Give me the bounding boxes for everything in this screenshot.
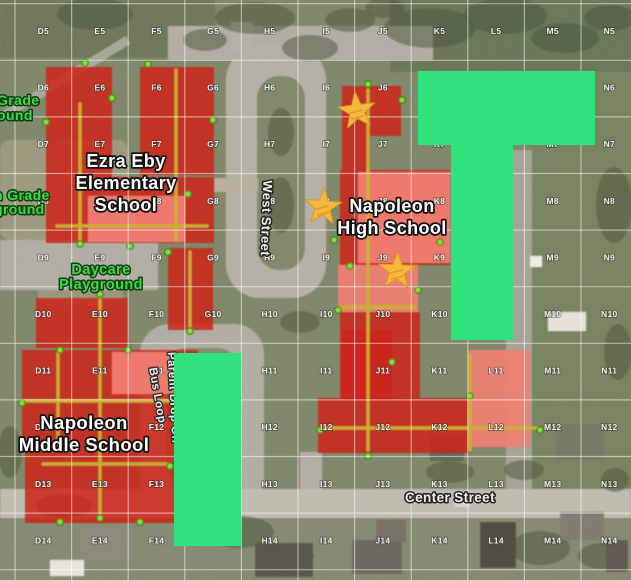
entrance-marker-dot — [365, 81, 371, 87]
grid-cell-label: N7 — [604, 139, 615, 149]
high-school-label: High School — [337, 218, 446, 238]
grid-cell-label: D11 — [35, 366, 51, 376]
grid-cell-label: I7 — [322, 139, 330, 149]
grid-cell-label: I10 — [320, 309, 333, 319]
grid-cell-label: D7 — [38, 139, 49, 149]
grid-cell-label: K12 — [431, 422, 448, 432]
grid-cell-label: J14 — [375, 535, 390, 545]
grid-cell-label: M5 — [546, 26, 558, 36]
grid-cell-label: F14 — [149, 535, 165, 545]
entrance-marker-dot — [77, 241, 83, 247]
entrance-marker-dot — [165, 249, 171, 255]
grid-cell-label: H12 — [261, 422, 278, 432]
grid-cell-label: J11 — [376, 366, 391, 376]
entrance-marker-dot — [167, 463, 173, 469]
grid-cell-label: F5 — [151, 26, 162, 36]
grid-cell-label: H6 — [264, 83, 275, 93]
middle-school-label: Middle School — [19, 434, 150, 455]
grid-cell-label: I12 — [320, 422, 333, 432]
grid-cell-label: F10 — [149, 309, 165, 319]
grid-cell-label: N5 — [604, 26, 615, 36]
grid-cell-label: G5 — [207, 26, 219, 36]
grid-cell-label: H7 — [264, 139, 275, 149]
campus-map-image[interactable]: D5D6D7D8D9D10D11D12D13D14E5E6E7E8E9E10E1… — [0, 0, 631, 580]
entrance-marker-dot — [210, 117, 216, 123]
grid-cell-label: E5 — [94, 26, 105, 36]
grid-cell-label: K10 — [431, 309, 448, 319]
grid-cell-label: E10 — [92, 309, 108, 319]
grid-cell-label: E7 — [94, 139, 105, 149]
grid-cell-label: D5 — [38, 26, 49, 36]
grid-cell-label: G10 — [205, 309, 222, 319]
high-school-label: Napoleon — [349, 196, 434, 216]
building-footprint-highlight — [112, 352, 174, 394]
grid-cell-label: N6 — [604, 83, 615, 93]
grid-cell-label: K8 — [434, 196, 445, 206]
grid-cell-label: L13 — [488, 479, 504, 489]
grid-cell-label: L5 — [491, 26, 502, 36]
grid-cell-label: I14 — [320, 535, 333, 545]
grid-cell-label: N14 — [601, 535, 618, 545]
elementary-school-label: Ezra Eby — [86, 151, 165, 171]
grid-cell-label: K5 — [434, 26, 445, 36]
daycare-playground-label: Playground — [59, 277, 143, 293]
entrance-marker-dot — [43, 119, 49, 125]
entrance-marker-dot — [109, 95, 115, 101]
highlight-zone-bar[interactable] — [174, 353, 241, 546]
grid-cell-label: D9 — [38, 252, 49, 262]
grid-cell-label: D13 — [35, 479, 52, 489]
grid-cell-label: J12 — [375, 422, 390, 432]
grid-cell-label: H14 — [261, 535, 278, 545]
grid-cell-label: M9 — [546, 252, 558, 262]
entrance-marker-dot — [437, 239, 443, 245]
grid-cell-label: H11 — [262, 366, 278, 376]
grid-cell-label: D14 — [35, 535, 52, 545]
grid-cell-label: G7 — [207, 139, 219, 149]
grid-cell-label: I6 — [322, 83, 330, 93]
grid-cell-label: K11 — [431, 366, 447, 376]
grid-cell-label: J5 — [378, 26, 388, 36]
grid-cell-label: I13 — [320, 479, 333, 489]
grid-cell-label: G8 — [207, 196, 219, 206]
entrance-marker-dot — [335, 307, 341, 313]
entrance-marker-dot — [389, 359, 395, 365]
center-street-label: Center Street — [405, 490, 495, 505]
grid-cell-label: F6 — [151, 83, 162, 93]
elementary-school-label: School — [95, 195, 157, 215]
entrance-marker-dot — [399, 97, 405, 103]
daycare-playground-label: Daycare — [71, 262, 130, 278]
grid-cell-label: G9 — [207, 252, 219, 262]
building-footprint — [36, 298, 128, 348]
entrance-marker-dot — [19, 400, 25, 406]
grid-cell-label: F9 — [151, 252, 162, 262]
grid-cell-label: E13 — [92, 479, 108, 489]
grid-cell-label: H10 — [261, 309, 278, 319]
grid-cell-label: I5 — [322, 26, 330, 36]
grid-cell-label: K9 — [434, 252, 445, 262]
grid-cell-label: J13 — [375, 479, 390, 489]
grade-playground-label-left: ground — [0, 201, 45, 217]
grid-cell-label: J9 — [378, 252, 388, 262]
entrance-marker-dot — [137, 519, 143, 525]
elementary-school-label: Elementary — [75, 173, 176, 193]
grid-cell-label: J6 — [378, 83, 388, 93]
grid-cell-label: K13 — [431, 479, 448, 489]
grid-cell-label: L11 — [489, 366, 504, 376]
entrance-marker-dot — [57, 519, 63, 525]
grid-cell-label: F7 — [151, 139, 162, 149]
grid-cell-label: L14 — [488, 535, 504, 545]
grid-cell-label: H5 — [264, 26, 275, 36]
grid-cell-label: N8 — [604, 196, 615, 206]
west-street-label: West Street — [258, 180, 276, 256]
grid-cell-label: E11 — [92, 366, 108, 376]
grid-cell-label: N9 — [604, 252, 615, 262]
grade-playground-label-top: Grade — [0, 92, 39, 108]
grid-cell-label: N11 — [601, 366, 617, 376]
grid-cell-label: M11 — [544, 366, 561, 376]
grid-cell-label: G6 — [207, 83, 219, 93]
grid-cell-label: L12 — [488, 422, 504, 432]
grid-cell-label: K14 — [431, 535, 448, 545]
grid-cell-label: I11 — [320, 366, 332, 376]
grid-cell-label: N10 — [601, 309, 618, 319]
entrance-marker-dot — [185, 191, 191, 197]
grid-cell-label: N12 — [601, 422, 618, 432]
building-footprint-highlight — [468, 350, 530, 447]
grid-cell-label: M13 — [544, 479, 561, 489]
grid-cell-label: J7 — [378, 139, 388, 149]
entrance-marker-dot — [57, 347, 63, 353]
grid-cell-label: E9 — [94, 252, 105, 262]
grid-cell-label: D10 — [35, 309, 52, 319]
grid-cell-label: M12 — [544, 422, 561, 432]
grid-cell-label: M10 — [544, 309, 561, 319]
entrance-marker-dot — [347, 263, 353, 269]
grid-cell-label: E14 — [92, 535, 108, 545]
campus-map[interactable]: D5D6D7D8D9D10D11D12D13D14E5E6E7E8E9E10E1… — [0, 0, 631, 580]
grid-cell-label: J10 — [375, 309, 390, 319]
entrance-marker-dot — [415, 287, 421, 293]
entrance-marker-dot — [145, 61, 151, 67]
grid-cell-label: M14 — [544, 535, 561, 545]
entrance-marker-dot — [187, 328, 193, 334]
entrance-marker-dot — [331, 237, 337, 243]
grade-playground-label-top: ound — [0, 107, 33, 123]
grid-cell-label: F13 — [149, 479, 165, 489]
grid-cell-label: H13 — [261, 479, 278, 489]
grid-cell-label: E6 — [94, 83, 105, 93]
entrance-marker-dot — [537, 427, 543, 433]
grid-cell-label: I9 — [322, 252, 330, 262]
grid-cell-label: N13 — [601, 479, 618, 489]
entrance-marker-dot — [97, 515, 103, 521]
grid-cell-label: M8 — [546, 196, 558, 206]
middle-school-label: Napoleon — [40, 412, 127, 433]
